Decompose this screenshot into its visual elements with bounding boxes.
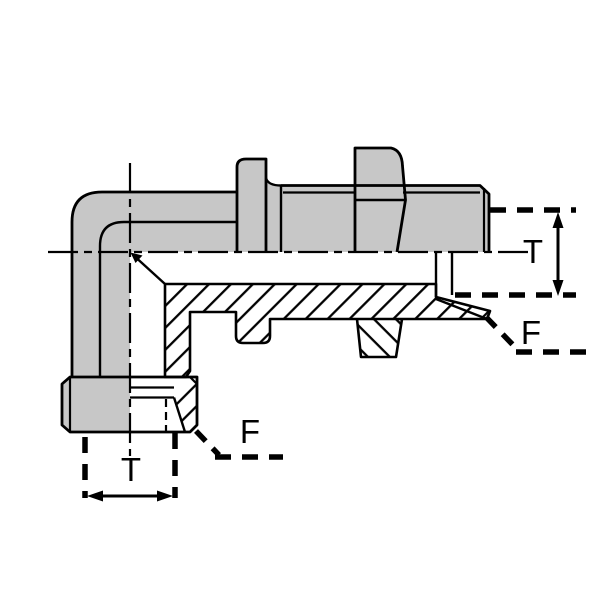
bottom-port-fill	[62, 377, 130, 432]
t-label-right: T	[523, 233, 543, 270]
body-section-hatch	[165, 284, 490, 377]
bottom-port-wall-hatch	[175, 377, 197, 432]
f-label-bottom: F	[240, 413, 260, 450]
bore-cone-line	[137, 259, 165, 285]
f-label-right: F	[521, 314, 541, 351]
locknut-section-hatch	[357, 319, 402, 357]
drawing-canvas: T F F T	[0, 0, 600, 600]
fitting-diagram: T F F T	[0, 0, 600, 600]
bottom-t-dimension-arrow	[87, 491, 173, 502]
right-t-dimension-arrow	[553, 212, 564, 296]
bottom-port-washer-lines	[130, 388, 174, 398]
t-label-bottom: T	[121, 451, 141, 488]
